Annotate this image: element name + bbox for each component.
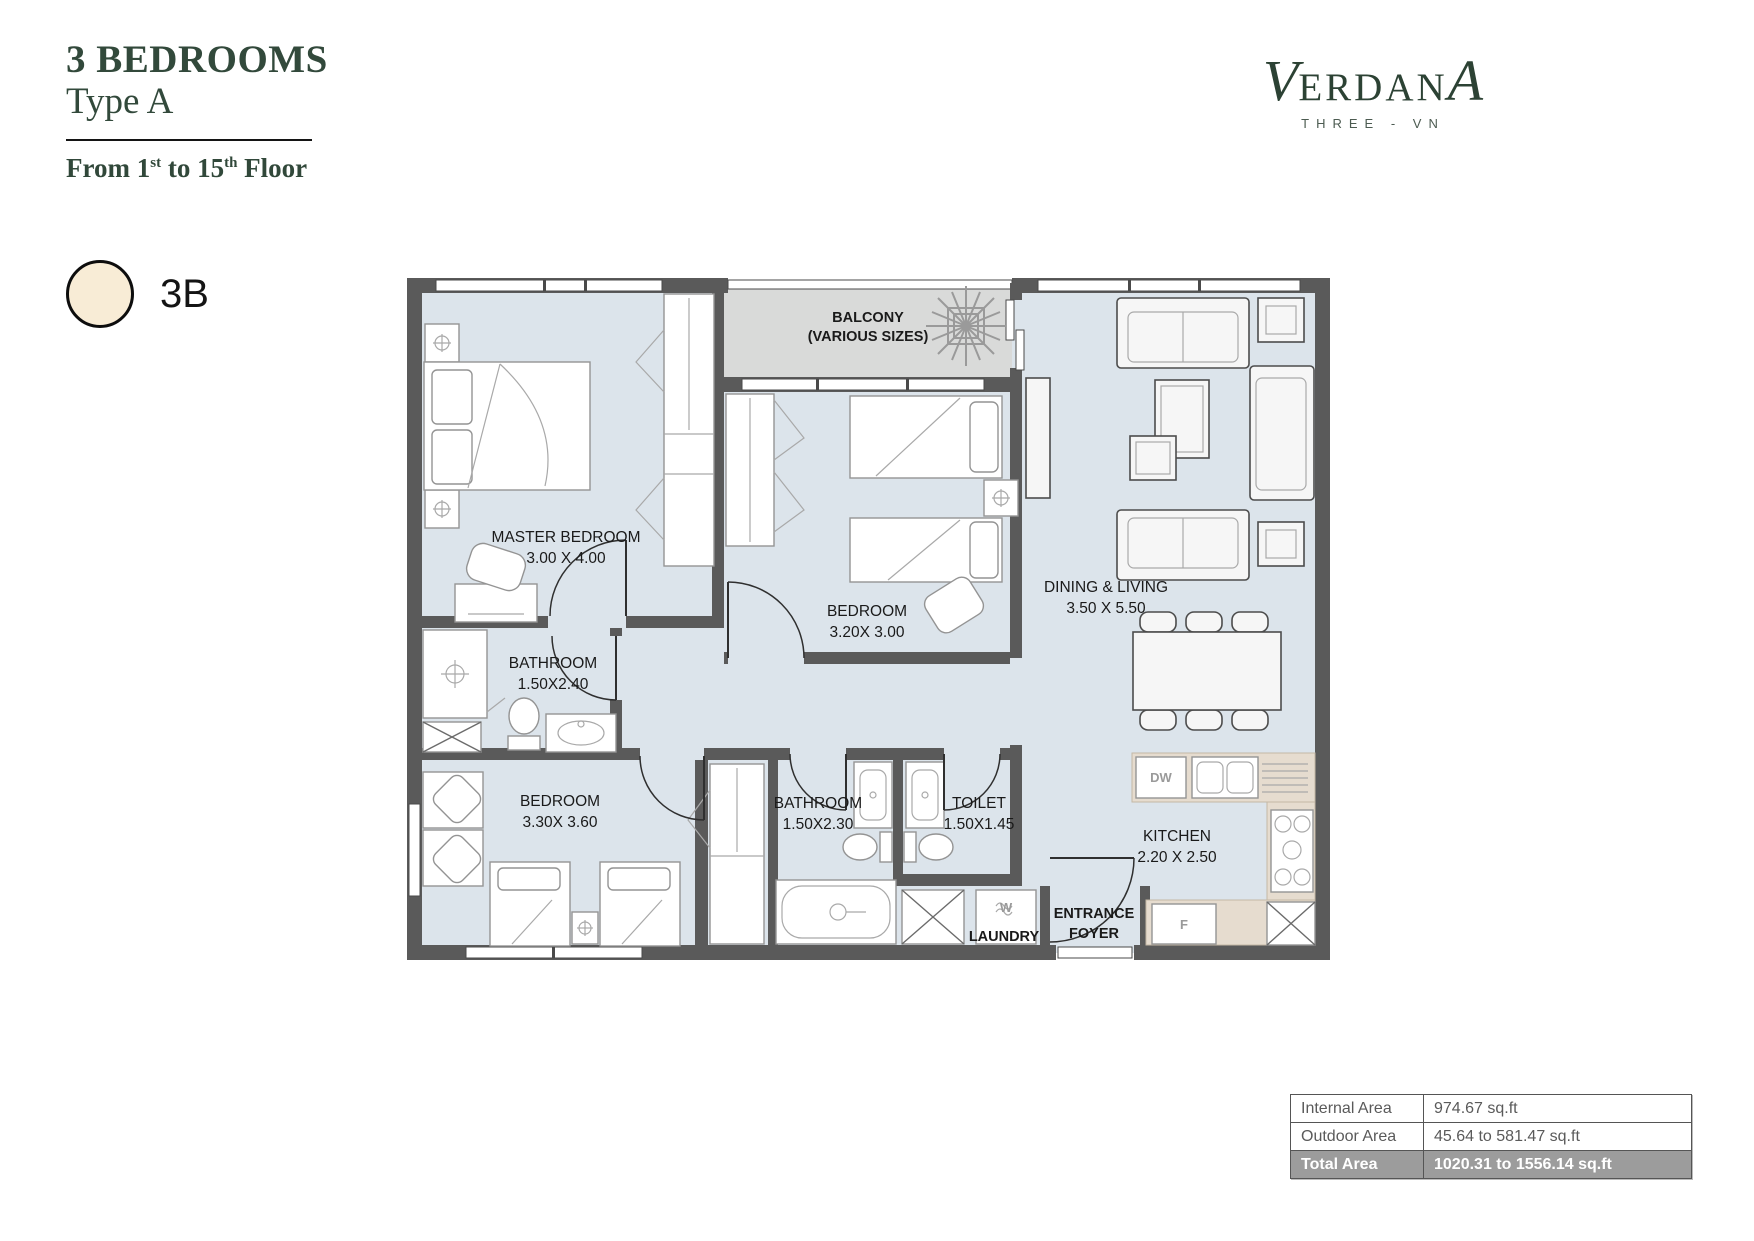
room-dims-kitchen: 2.20 X 2.50 (1137, 849, 1217, 866)
brand-letter: V (1263, 52, 1298, 110)
floor-range: From 1st to 15th Floor (66, 153, 328, 184)
room-dims-bathroom1: 1.50X2.40 (518, 676, 589, 693)
brand-wordmark: VERDANA (1248, 52, 1498, 110)
floor-range-part: to 15 (161, 153, 224, 183)
area-value: 45.64 to 581.47 sq.ft (1424, 1123, 1692, 1151)
room-label-bedroom2: BEDROOM (827, 603, 907, 620)
room-label-toilet: TOILET (952, 795, 1007, 812)
room-dims-bedroom2: 3.20X 3.00 (830, 624, 905, 641)
floor-range-part: Floor (237, 153, 307, 183)
room-dims-bedroom3: 3.30X 3.60 (523, 814, 598, 831)
room-label-laundry: LAUNDRY (969, 929, 1040, 945)
floor-range-part: From 1 (66, 153, 150, 183)
table-row-total: Total Area 1020.31 to 1556.14 sq.ft (1291, 1151, 1692, 1179)
dining-table-set (1133, 612, 1281, 730)
area-label: Outdoor Area (1291, 1123, 1424, 1151)
dishwasher-label: DW (1150, 770, 1172, 785)
floor-range-sup: st (150, 155, 161, 171)
room-dims-bathroom2: 1.50X2.30 (783, 816, 854, 833)
room-dims-master: 3.00 X 4.00 (526, 550, 606, 567)
room-label-bathroom2: BATHROOM (774, 795, 862, 812)
floorplan-drawing: MASTER BEDROOM 3.00 X 4.00 BALCONY (VARI… (400, 270, 1340, 970)
table-row-outdoor: Outdoor Area 45.64 to 581.47 sq.ft (1291, 1123, 1692, 1151)
area-value: 974.67 sq.ft (1424, 1095, 1692, 1123)
room-label-bathroom1: BATHROOM (509, 655, 597, 672)
room-label-entrance: ENTRANCE (1054, 906, 1135, 922)
room-label-dining-living: DINING & LIVING (1044, 579, 1168, 596)
floorplan-page: 3 BEDROOMS Type A From 1st to 15th Floor… (0, 0, 1754, 1241)
page-subtitle: Type A (66, 81, 328, 124)
page-title: 3 BEDROOMS (66, 40, 328, 81)
table-row-internal: Internal Area 974.67 sq.ft (1291, 1095, 1692, 1123)
unit-badge-label: 3B (160, 272, 209, 317)
room-label-master: MASTER BEDROOM (492, 529, 641, 546)
brand-letter: A (1448, 52, 1483, 110)
washer-label: W (1000, 900, 1013, 915)
floor-range-sup: th (224, 155, 237, 171)
area-label: Internal Area (1291, 1095, 1424, 1123)
balcony-railing (728, 280, 1012, 289)
stove (1271, 810, 1313, 892)
room-label-bedroom3: BEDROOM (520, 793, 600, 810)
area-label: Total Area (1291, 1151, 1424, 1179)
brand-logo: VERDANA THREE - VN (1248, 52, 1498, 131)
unit-badge-circle (66, 260, 134, 328)
fridge-label: F (1180, 917, 1188, 932)
area-value: 1020.31 to 1556.14 sq.ft (1424, 1151, 1692, 1179)
room-dims-toilet: 1.50X1.45 (944, 816, 1015, 833)
header: 3 BEDROOMS Type A From 1st to 15th Floor (66, 40, 328, 184)
balcony-plant (926, 286, 1006, 366)
room-dims-balcony: (VARIOUS SIZES) (808, 329, 929, 345)
brand-subtitle: THREE - VN (1248, 116, 1498, 131)
room-dims-dining-living: 3.50 X 5.50 (1066, 600, 1146, 617)
room-label-foyer: FOYER (1069, 926, 1119, 942)
room-label-kitchen: KITCHEN (1143, 828, 1211, 845)
room-label-balcony: BALCONY (832, 310, 904, 326)
brand-letters: ERDAN (1298, 68, 1447, 107)
unit-badge: 3B (66, 260, 209, 328)
area-table: Internal Area 974.67 sq.ft Outdoor Area … (1290, 1094, 1692, 1179)
header-divider (66, 139, 312, 141)
